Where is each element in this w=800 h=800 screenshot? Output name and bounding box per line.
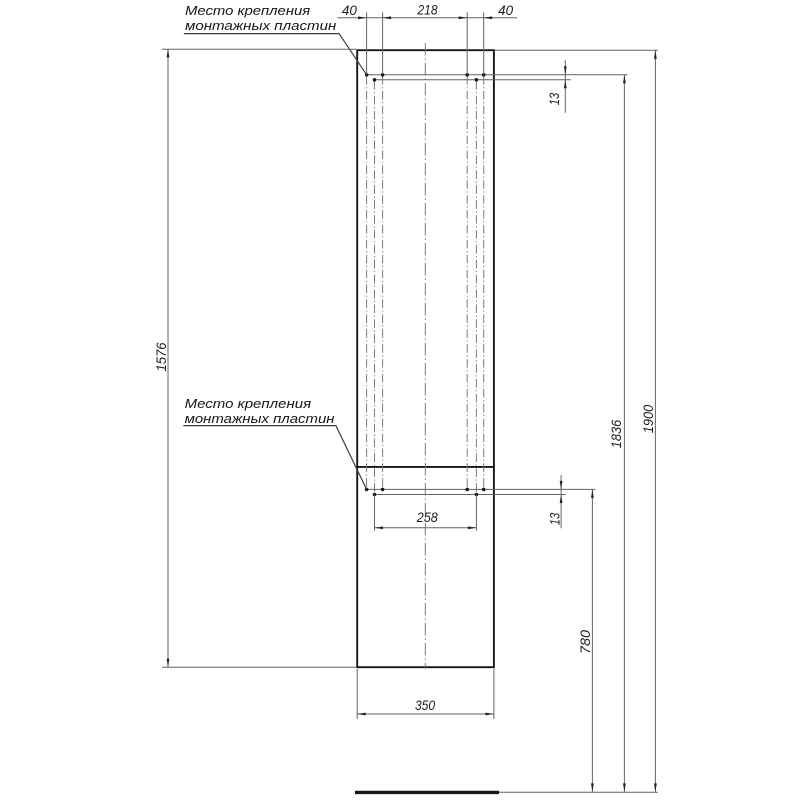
svg-text:Место крепления: Место крепления — [185, 396, 312, 411]
svg-text:13: 13 — [548, 512, 563, 525]
svg-text:40: 40 — [498, 3, 514, 18]
svg-text:1576: 1576 — [154, 342, 169, 372]
svg-text:218: 218 — [417, 3, 438, 18]
svg-text:13: 13 — [547, 92, 562, 105]
svg-text:350: 350 — [415, 698, 435, 713]
svg-text:Место крепления: Место крепления — [185, 3, 310, 18]
svg-text:258: 258 — [416, 510, 438, 525]
svg-text:1836: 1836 — [609, 419, 624, 448]
svg-text:40: 40 — [342, 3, 358, 18]
svg-text:1900: 1900 — [641, 404, 656, 433]
svg-text:780: 780 — [578, 629, 593, 654]
svg-text:монтажных пластин: монтажных пластин — [185, 411, 336, 426]
svg-text:монтажных пластин: монтажных пластин — [185, 18, 337, 33]
